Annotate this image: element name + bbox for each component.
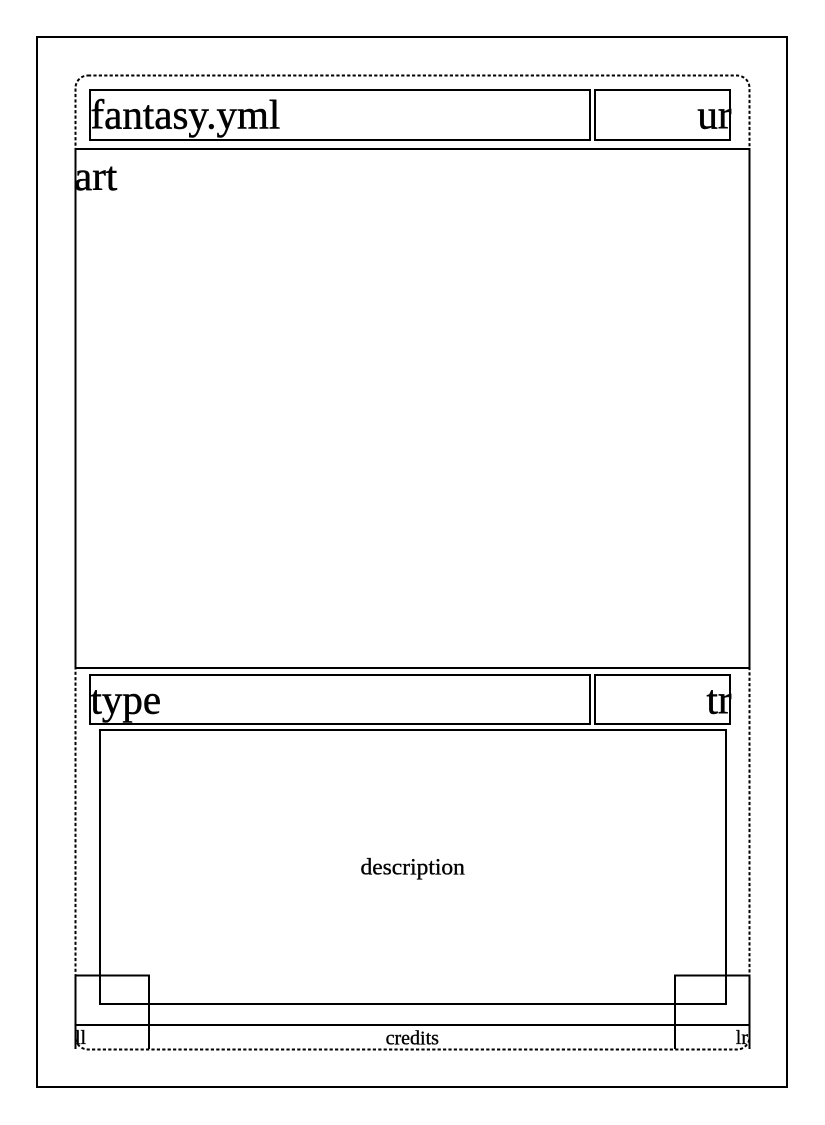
svg-text:art: art <box>74 153 118 199</box>
svg-text:ll: ll <box>75 1027 87 1049</box>
svg-text:type: type <box>91 676 162 722</box>
svg-text:credits: credits <box>386 1028 440 1050</box>
svg-text:fantasy.yml: fantasy.yml <box>91 91 281 137</box>
svg-text:description: description <box>360 854 465 880</box>
svg-text:ur: ur <box>697 91 732 137</box>
svg-text:lr: lr <box>736 1027 749 1049</box>
svg-text:tr: tr <box>706 676 731 722</box>
